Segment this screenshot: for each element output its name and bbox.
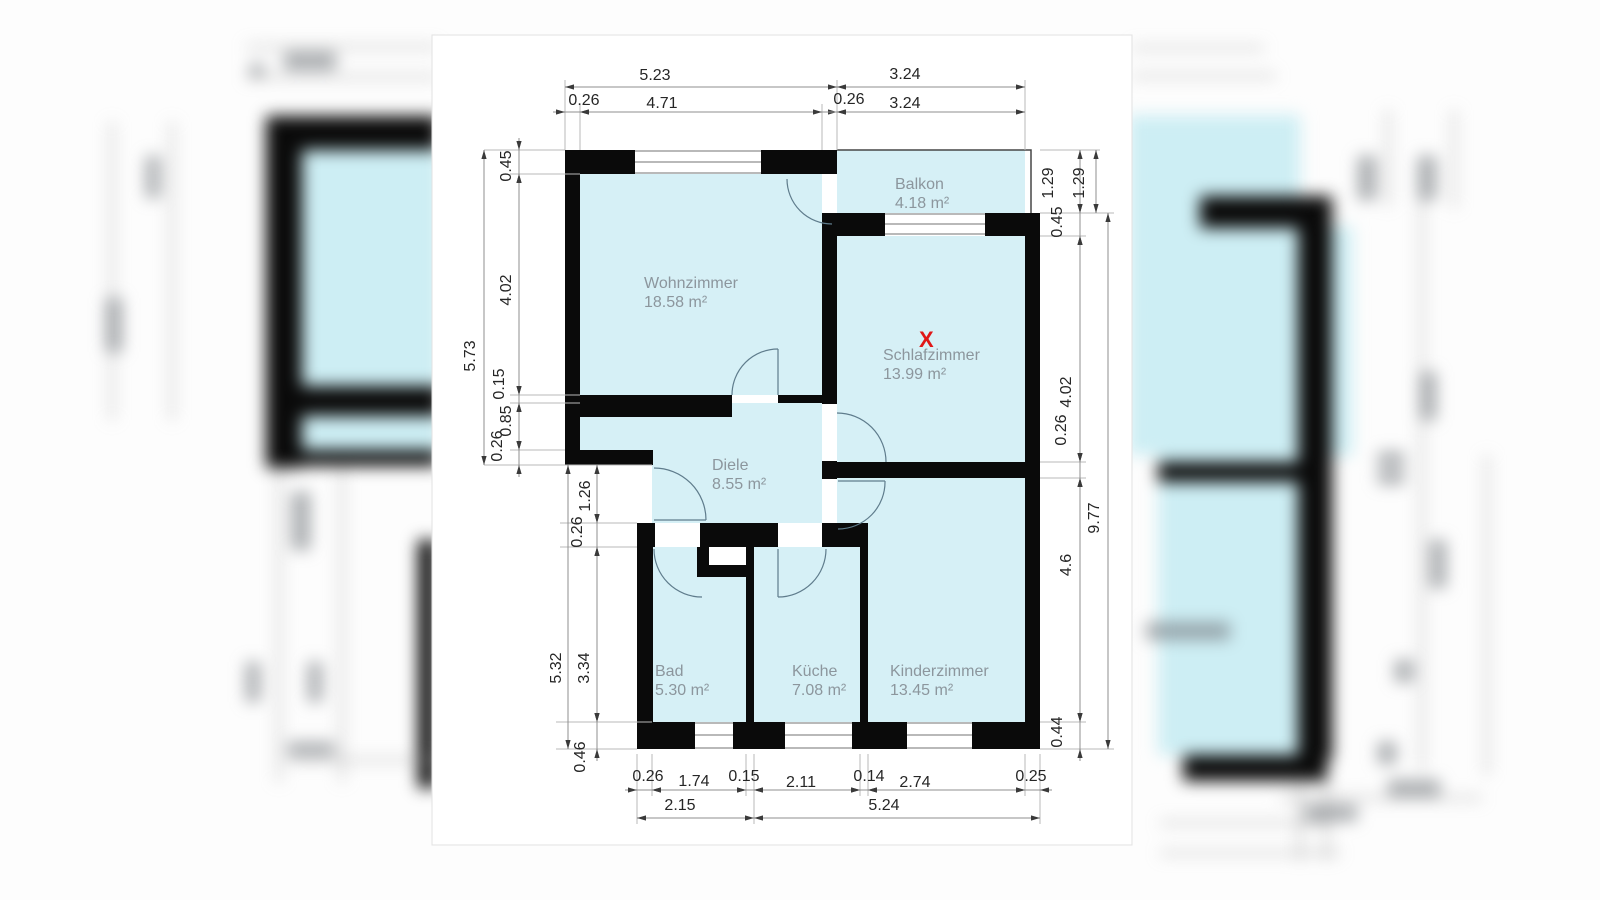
dim-label-right: 0.45	[1049, 206, 1066, 237]
dim-label-bottom: 1.74	[678, 773, 709, 790]
room-name: Wohnzimmer	[644, 275, 739, 292]
dim-label-left: 4.02	[498, 274, 515, 305]
dim-label-top: 5.23	[639, 67, 670, 84]
dim-label-right: 0.44	[1049, 716, 1066, 747]
dim-label-right: 4.02	[1058, 376, 1075, 407]
floor-plan-screenshot: 5.23 3.24 0.26 4.71 0.26 3.24 0.45 4.02 …	[0, 0, 1600, 900]
room-name: Diele	[712, 457, 749, 474]
room-area: 13.45 m²	[890, 682, 954, 699]
dim-label-top: 3.24	[889, 66, 920, 83]
dim-label-bottom: 5.24	[868, 797, 899, 814]
dim-label-right: 4.6	[1058, 554, 1075, 576]
dim-label-bottom: 0.25	[1015, 768, 1046, 785]
dim-label-bottom: 0.26	[632, 768, 663, 785]
dim-label-top: 0.26	[833, 91, 864, 108]
dim-label-top: 4.71	[646, 95, 677, 112]
dim-label-top: 3.24	[889, 95, 920, 112]
dim-label-left: 0.45	[498, 150, 515, 181]
dim-label-left: 0.15	[491, 368, 508, 399]
dim-label-right: 1.29	[1071, 167, 1088, 198]
dim-label-left: 3.34	[576, 652, 593, 683]
room-area: 13.99 m²	[883, 366, 947, 383]
background-blur-left	[106, 47, 440, 788]
dim-label-right: 0.26	[1053, 414, 1070, 445]
floor-plan-svg: 5.23 3.24 0.26 4.71 0.26 3.24 0.45 4.02 …	[0, 0, 1600, 900]
dim-label-left: 0.46	[572, 741, 589, 772]
room-area: 8.55 m²	[712, 476, 767, 493]
background-blur-right	[1128, 48, 1487, 860]
room-area: 5.30 m²	[655, 682, 710, 699]
room-area: 4.18 m²	[895, 195, 950, 212]
dim-label-left: 0.26	[569, 516, 586, 547]
room-name: Balkon	[895, 176, 944, 193]
dim-label-left: 0.26	[489, 430, 506, 461]
dim-label-left: 5.32	[548, 652, 565, 683]
dim-label-bottom: 0.14	[853, 768, 884, 785]
room-name: Bad	[655, 663, 683, 680]
dim-label-bottom: 2.15	[664, 797, 695, 814]
room-name: Kinderzimmer	[890, 663, 989, 680]
dim-label-bottom: 0.15	[728, 768, 759, 785]
dim-label-bottom: 2.11	[786, 774, 816, 791]
dim-label-top: 0.26	[568, 92, 599, 109]
dim-label-right: 9.77	[1086, 502, 1103, 533]
room-name: Küche	[792, 663, 837, 680]
dim-label-left: 5.73	[462, 340, 479, 371]
dim-label-right: 1.29	[1040, 167, 1057, 198]
room-area: 18.58 m²	[644, 294, 708, 311]
room-area: 7.08 m²	[792, 682, 847, 699]
room-name: Schlafzimmer	[883, 347, 981, 364]
dim-label-left: 1.26	[577, 480, 594, 511]
dim-label-bottom: 2.74	[899, 774, 930, 791]
